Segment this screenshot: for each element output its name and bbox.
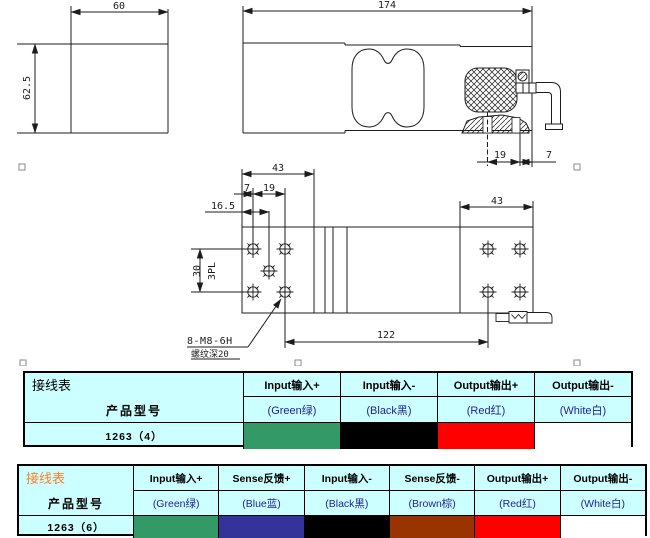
dim-side-cable-end: 7 bbox=[546, 150, 552, 161]
t6-swatch-green bbox=[133, 515, 218, 538]
t6-label-cell: 接线表 产品型号 bbox=[19, 466, 133, 515]
t6-title: 接线表 bbox=[19, 468, 133, 487]
t6-swatch-red bbox=[474, 515, 559, 538]
t4-header-output-pos: Output输出+ bbox=[437, 373, 534, 396]
t6-wire-black: (Black黑) bbox=[304, 490, 389, 515]
cable-gland bbox=[465, 68, 517, 112]
t4-title: 接线表 bbox=[25, 375, 243, 394]
dim-top-hole-pitch-x: 19 bbox=[263, 183, 275, 194]
t6-wire-green: (Green绿) bbox=[133, 490, 218, 515]
t4-wire-red: (Red红) bbox=[437, 396, 534, 422]
dim-top-hole-span: 122 bbox=[377, 330, 395, 341]
t6-header-sense-pos: Sense反馈+ bbox=[218, 466, 303, 490]
t6-product-label: 产品型号 bbox=[19, 495, 133, 512]
t6-header-output-pos: Output输出+ bbox=[474, 466, 559, 490]
t6-header-output-neg: Output输出- bbox=[560, 466, 645, 490]
thread-note: 螺纹深20 bbox=[191, 348, 229, 360]
wiring-table-6wire: 接线表 产品型号 Input输入+ Sense反馈+ Input输入- Sens… bbox=[17, 464, 647, 536]
t6-swatch-brown bbox=[389, 515, 474, 538]
dim-top-hole-pitch-y: 30 bbox=[192, 265, 203, 277]
dim-top-hole-pitch-note: 3PL bbox=[207, 262, 218, 280]
binocular-cutout bbox=[352, 49, 424, 127]
t4-swatch-black bbox=[340, 422, 437, 449]
t4-header-input-pos: Input输入+ bbox=[243, 373, 340, 396]
t6-header-sense-neg: Sense反馈- bbox=[389, 466, 474, 490]
t6-header-input-pos: Input输入+ bbox=[133, 466, 218, 490]
front-view bbox=[17, 6, 168, 133]
t4-wire-green: (Green绿) bbox=[243, 396, 340, 422]
dim-side-length: 174 bbox=[378, 0, 396, 11]
wiring-table-4wire: 接线表 产品型号 Input输入+ Input输入- Output输出+ Out… bbox=[23, 371, 633, 447]
dim-front-height: 62.5 bbox=[22, 76, 33, 100]
dim-top-right-width: 43 bbox=[491, 196, 503, 207]
t6-swatch-black bbox=[304, 515, 389, 538]
t6-wire-blue: (Blue蓝) bbox=[218, 490, 303, 515]
t6-wire-brown: (Brown棕) bbox=[389, 490, 474, 515]
dim-front-width: 60 bbox=[113, 1, 125, 12]
t4-wire-black: (Black黑) bbox=[340, 396, 437, 422]
t6-swatch-blue bbox=[218, 515, 303, 538]
bolt-holes bbox=[245, 241, 529, 301]
thread-callout: 8-M8-6H bbox=[187, 336, 233, 347]
dim-top-center-offset: 16.5 bbox=[211, 201, 235, 212]
dim-top-left-width: 43 bbox=[272, 163, 284, 174]
t4-label-cell: 接线表 产品型号 bbox=[25, 373, 243, 422]
t4-swatch-red bbox=[437, 422, 534, 449]
cable-elbow bbox=[536, 83, 561, 125]
t6-wire-red: (Red红) bbox=[474, 490, 559, 515]
t4-model: 1263（4） bbox=[25, 422, 243, 449]
t4-swatch-white bbox=[534, 422, 631, 449]
side-view bbox=[243, 6, 563, 167]
technical-drawing: 60 62.5 bbox=[0, 0, 650, 366]
t6-header-input-neg: Input输入- bbox=[304, 466, 389, 490]
t4-product-label: 产品型号 bbox=[25, 402, 243, 419]
selection-handles bbox=[19, 164, 580, 366]
dim-side-cable-pitch: 19 bbox=[494, 150, 506, 161]
t6-model: 1263（6） bbox=[19, 515, 133, 538]
dim-top-edge-offset: 7 bbox=[244, 183, 250, 194]
datasheet-page: 60 62.5 bbox=[0, 0, 650, 538]
t4-header-input-neg: Input输入- bbox=[340, 373, 437, 396]
t4-wire-white: (White白) bbox=[534, 396, 631, 422]
t4-header-output-neg: Output输出- bbox=[534, 373, 631, 396]
t6-swatch-white bbox=[560, 515, 645, 538]
t6-wire-white: (White白) bbox=[560, 490, 645, 515]
t4-swatch-green bbox=[243, 422, 340, 449]
